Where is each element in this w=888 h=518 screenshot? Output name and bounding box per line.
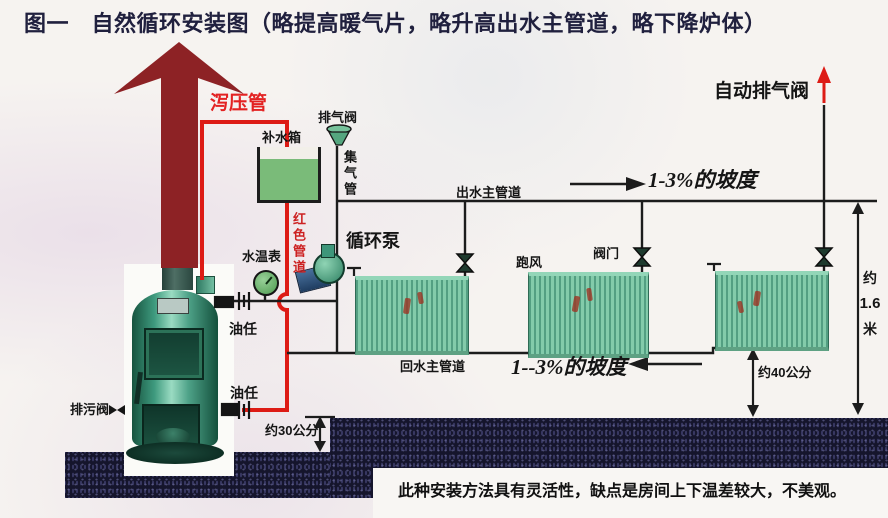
auto-vent-red-arrow (817, 66, 831, 103)
radiator2-valve-icon (634, 248, 650, 266)
radiator-2 (528, 272, 649, 358)
dim-arrow-40cm (747, 348, 759, 417)
annotation-slope-bottom: 1--3%的坡度 (511, 355, 626, 379)
label-exhaust-valve: 排气阀 (318, 111, 357, 126)
rust-stain (403, 298, 411, 315)
radiator-1 (355, 276, 469, 355)
radiator3-valve-icon (816, 248, 832, 266)
annotation-return-height: 约40公分 (758, 366, 811, 381)
label-auto-air-vent: 自动排气阀 (714, 81, 809, 103)
lower-nipple (222, 404, 238, 415)
slope-arrow-bottom (628, 357, 702, 371)
exhaust-funnel-icon (327, 125, 351, 145)
radiator-3 (715, 271, 829, 351)
makeup-water-tank (257, 147, 321, 203)
slope-arrow-top (570, 177, 646, 191)
total-height-value: 1.6 (860, 295, 881, 312)
label-supply-main: 出水主管道 (456, 186, 521, 201)
label-return-main: 回水主管道 (400, 360, 465, 375)
rust-stain (737, 301, 744, 314)
total-height-unit: 米 (863, 319, 877, 339)
annotation-pit-depth: 约30公分 (265, 424, 318, 439)
rust-stain (417, 292, 424, 305)
label-radiator-valve: 阀门 (593, 247, 619, 262)
circulation-pump (299, 246, 351, 298)
label-circulation-pump: 循环泵 (346, 231, 400, 252)
rust-stain (586, 288, 593, 302)
label-union-lower: 油任 (230, 385, 258, 401)
figure-caption: 此种安装方法具有灵活性，缺点是房间上下温差较大，不美观。 (398, 477, 846, 501)
radiator1-valve-icon (457, 254, 473, 272)
drain-valve-icon (109, 405, 125, 415)
radiator3-vent-icon (707, 264, 721, 271)
label-makeup-tank: 补水箱 (262, 131, 301, 146)
label-union-upper: 油任 (229, 321, 257, 337)
rust-stain (572, 296, 581, 313)
annotation-slope-top: 1-3%的坡度 (648, 168, 757, 192)
label-gas-collector: 集气管 (341, 150, 356, 198)
total-height-prefix: 约 (863, 268, 877, 288)
schematic-overlay (0, 0, 888, 518)
label-red-pipe: 红色管道 (290, 212, 305, 276)
rising-heat-arrow (114, 42, 244, 268)
rust-stain (753, 291, 761, 307)
label-radiator-air-vent: 跑风 (516, 256, 542, 271)
figure-title: 图一 自然循环安装图（略提高暖气片，略升高出水主管道，略下降炉体） (24, 6, 767, 38)
label-relief-pipe: 泻压管 (210, 93, 267, 115)
water-temp-gauge (253, 270, 279, 296)
label-water-temp-gauge: 水温表 (242, 250, 281, 265)
gauge-needle (265, 276, 272, 284)
label-drain-valve: 排污阀 (70, 403, 109, 418)
upper-nipple (215, 297, 233, 307)
annotation-total-height: 约 1.6 米 (856, 268, 884, 339)
pump-outlet (321, 244, 335, 258)
diagram-canvas: 图一 自然循环安装图（略提高暖气片，略升高出水主管道，略下降炉体） 泻压管 排气… (0, 0, 888, 518)
